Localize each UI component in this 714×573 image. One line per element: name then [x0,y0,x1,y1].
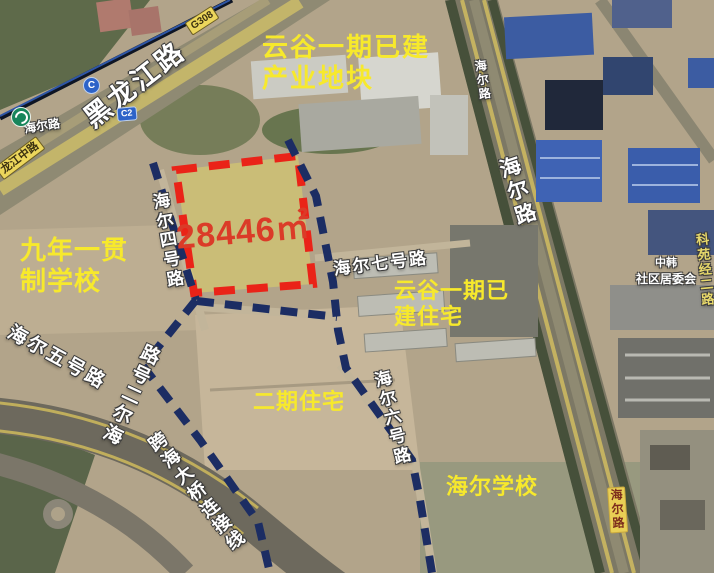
label-yungu-industrial-line1: 云谷一期已建 [262,32,430,63]
label-haier-road-lower: 海尔路 [607,486,628,533]
label-community-line2: 社区居委会 [634,270,698,287]
transit-line-c-marker: C [83,77,100,94]
satellite-map: 28446㎡ 云谷一期已建 产业地块 九年一贯 制学校 云谷一期已 建住宅 二期… [0,0,714,573]
metro-logo-glyph [12,108,30,126]
label-yungu-industrial: 云谷一期已建 产业地块 [262,32,430,93]
label-phase2-residential: 二期住宅 [253,389,345,415]
label-yungu-industrial-line2: 产业地块 [262,63,430,94]
label-nine-year-school-line2: 制学校 [20,266,128,297]
label-community-line1: 中韩 [634,254,698,270]
metro-station-icon [11,107,31,127]
label-haier-school: 海尔学校 [446,474,538,500]
label-community-committee: 中韩 社区居委会 [634,254,698,287]
label-nine-year-school-line1: 九年一贯 [20,235,128,266]
label-yungu-residential-line2: 建住宅 [394,304,509,330]
label-yungu-residential: 云谷一期已 建住宅 [394,278,509,330]
label-yungu-residential-line1: 云谷一期已 [394,278,509,304]
transit-line-c2-marker: C2 [116,106,137,121]
label-nine-year-school: 九年一贯 制学校 [20,235,128,296]
